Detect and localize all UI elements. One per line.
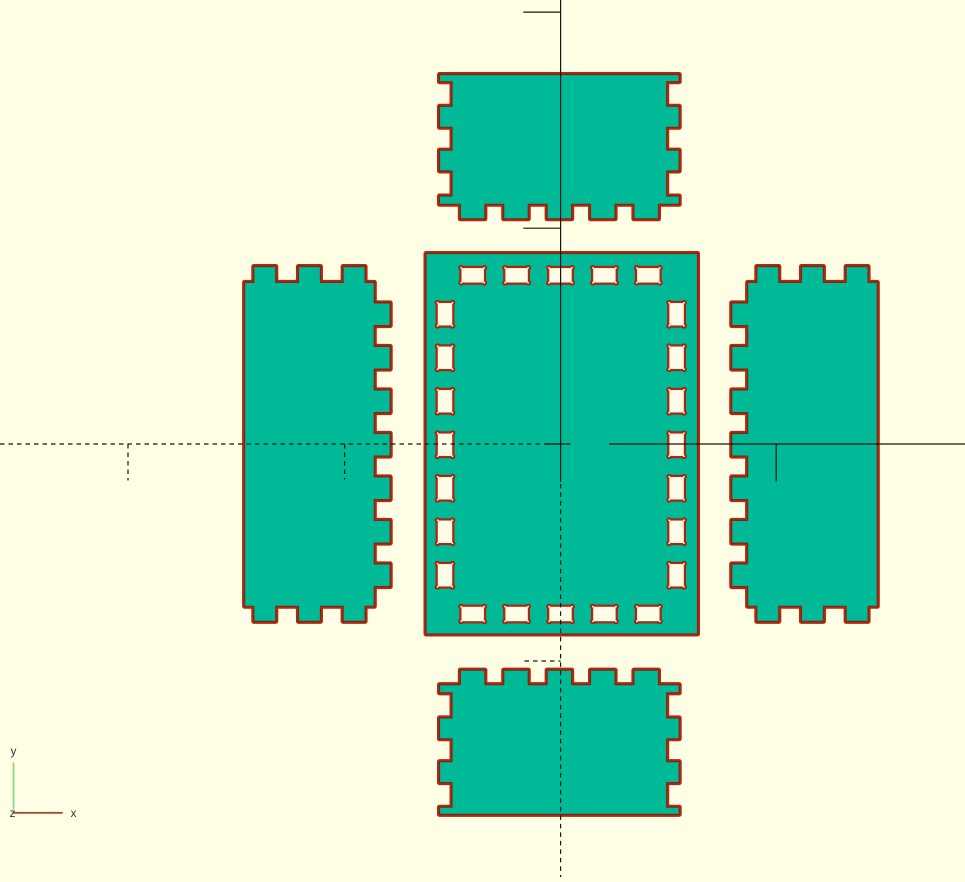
svg-text:y: y bbox=[11, 746, 17, 758]
svg-text:z: z bbox=[10, 808, 16, 820]
svg-text:x: x bbox=[71, 808, 77, 820]
